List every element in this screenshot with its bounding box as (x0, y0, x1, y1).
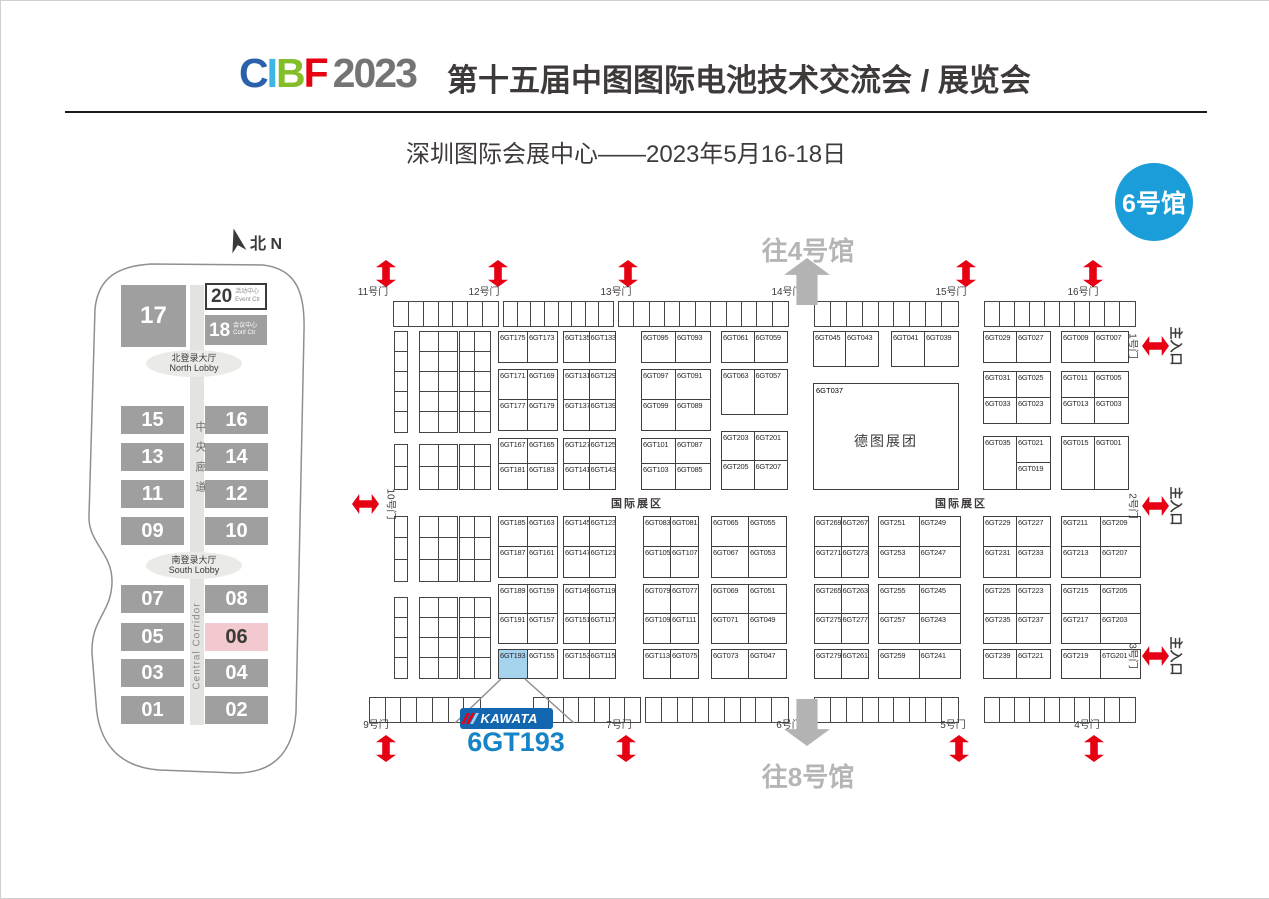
gate-label-10号门: 10号门 (385, 488, 400, 519)
small-booth-cell (709, 698, 725, 722)
booth-6GT249: 6GT249 (920, 517, 961, 547)
booth-6GT233: 6GT233 (1017, 547, 1050, 577)
small-booth-cell (742, 302, 757, 326)
booth-6GT015: 6GT015 (1062, 437, 1095, 489)
red-arrow-icon (949, 735, 969, 762)
booth-label: 6GT147 (565, 548, 590, 557)
booth-6GT169: 6GT169 (528, 370, 557, 400)
booth-label: 6GT213 (1063, 548, 1088, 557)
small-booth-cell (439, 392, 458, 412)
small-booth-cell (460, 538, 475, 559)
booth-6GT209: 6GT209 (1101, 517, 1140, 547)
booth-label: 6GT081 (672, 518, 697, 527)
booth-6GT151: 6GT151 (564, 614, 590, 643)
booth-label: 6GT229 (985, 518, 1010, 527)
booth-6GT029: 6GT029 (984, 332, 1017, 362)
booth-6GT207: 6GT207 (1101, 547, 1140, 577)
booth-label: 6GT015 (1063, 438, 1088, 447)
main-entrance-label: 主入口 (1168, 636, 1187, 675)
small-booth-cell (985, 698, 1000, 722)
booth-label: 6GT223 (1018, 586, 1043, 595)
booth-6GT117: 6GT117 (590, 614, 616, 643)
small-booth-cell (1090, 302, 1105, 326)
booth-6GT189: 6GT189 (499, 585, 528, 614)
booth-6GT031: 6GT031 (984, 372, 1017, 398)
small-booth-strip (459, 597, 491, 679)
booth-label: 6GT219 (1063, 651, 1088, 660)
booth-6GT119: 6GT119 (590, 585, 616, 614)
booth-block: 6GT1356GT133 (563, 331, 616, 363)
booth-label: 6GT117 (591, 615, 616, 624)
booth-label: 6GT111 (672, 615, 696, 624)
booth-6GT161: 6GT161 (528, 547, 557, 577)
booth-label: 6TG201 (1102, 651, 1127, 660)
small-booth-cell (831, 698, 847, 722)
small-booth-cell (475, 538, 490, 559)
small-booth-cell (665, 302, 680, 326)
small-booth-cell (420, 412, 439, 432)
booth-label: 6GT101 (643, 440, 668, 449)
booth-block: 6GT1136GT075 (643, 649, 699, 679)
small-booth-cell (1030, 698, 1045, 722)
small-booth-cell (439, 352, 458, 372)
booth-label: 6GT119 (591, 586, 616, 595)
booth-label: 6GT129 (591, 371, 616, 380)
booth-block: 6GT0976GT0916GT0996GT089 (641, 369, 711, 431)
booth-6GT263: 6GT263 (842, 585, 869, 614)
booth-label: 6GT021 (1018, 438, 1043, 447)
booth-label: 6GT065 (713, 518, 738, 527)
small-booth-cell (460, 638, 475, 658)
small-booth-cell (420, 352, 439, 372)
booth-block: 6GT0356GT0216GT019 (983, 436, 1051, 490)
booth-6GT057: 6GT057 (755, 370, 788, 414)
booth-label: 6GT153 (565, 651, 590, 660)
small-booth-cell (395, 598, 407, 618)
booth-6GT115: 6GT115 (590, 650, 616, 678)
booth-block: 6GT1936GT155 (498, 649, 558, 679)
booth-label: 6GT123 (591, 518, 616, 527)
booth-6GT217: 6GT217 (1062, 614, 1101, 643)
booth-6GT215: 6GT215 (1062, 585, 1101, 614)
booth-6GT271: 6GT271 (815, 547, 842, 577)
booth-label: 6GT279 (816, 651, 841, 660)
small-booth-cell (579, 698, 594, 722)
small-booth-cell (650, 302, 665, 326)
booth-label: 6GT037 (816, 386, 843, 395)
booth-label: 6GT063 (723, 371, 748, 380)
red-arrow-icon (376, 735, 396, 762)
small-booth-cell (395, 467, 407, 489)
international-zone-label: 国际展区 (611, 495, 663, 511)
booth-label: 6GT041 (893, 333, 918, 342)
booth-6GT053: 6GT053 (749, 547, 786, 577)
booth-6GT213: 6GT213 (1062, 547, 1101, 577)
booth-6GT069: 6GT069 (712, 585, 749, 614)
booth-block: 6GT1276GT1256GT1416GT143 (563, 438, 616, 490)
small-booth-cell (727, 302, 742, 326)
small-booth-cell (678, 698, 694, 722)
booth-label: 6GT075 (672, 651, 697, 660)
small-booth-cell (420, 392, 439, 412)
booth-label: 6GT207 (756, 462, 781, 471)
booth-6GT111: 6GT111 (671, 614, 698, 643)
booth-6GT079: 6GT079 (644, 585, 671, 614)
booth-6GT237: 6GT237 (1017, 614, 1050, 643)
small-booth-strip (394, 597, 408, 679)
small-booth-cell (460, 445, 475, 467)
booth-6GT103: 6GT103 (642, 464, 676, 489)
booth-block: 6GT1316GT1296GT1376GT139 (563, 369, 616, 431)
booth-6GT261: 6GT261 (842, 650, 869, 678)
booth-label: 6GT139 (591, 401, 616, 410)
small-booth-cell (475, 598, 490, 618)
booth-label: 6GT067 (713, 548, 738, 557)
small-booth-cell (395, 412, 407, 432)
booth-6GT003: 6GT003 (1095, 398, 1128, 424)
small-booth-cell (395, 372, 407, 392)
booth-6GT245: 6GT245 (920, 585, 961, 614)
booth-6GT205: 6GT205 (1101, 585, 1140, 614)
booth-label: 6GT179 (529, 401, 554, 410)
small-booth-cell (504, 302, 518, 326)
small-booth-strip (419, 516, 458, 582)
booth-block: 6GT2516GT2496GT2536GT247 (878, 516, 961, 578)
small-booth-cell (460, 560, 475, 581)
small-booth-cell (409, 302, 424, 326)
booth-block: 6GT0456GT043 (813, 331, 879, 367)
small-booth-cell (420, 538, 439, 559)
booth-6GT027: 6GT027 (1017, 332, 1050, 362)
booth-label: 6GT087 (677, 440, 702, 449)
booth-6GT257: 6GT257 (879, 614, 920, 643)
booth-label: 6GT243 (921, 615, 946, 624)
booth-6GT141: 6GT141 (564, 464, 590, 489)
red-arrow-icon (616, 735, 636, 762)
booth-label: 6GT257 (880, 615, 905, 624)
small-booth-cell (1000, 698, 1015, 722)
small-booth-cell (1030, 302, 1045, 326)
booth-block: 6GT0836GT0816GT1056GT107 (643, 516, 699, 578)
booth-label: 6GT143 (591, 465, 616, 474)
booth-6GT251: 6GT251 (879, 517, 920, 547)
booth-label: 6GT273 (843, 548, 868, 557)
booth-block: 6GT1896GT1596GT1916GT157 (498, 584, 558, 644)
booth-label: 6GT055 (750, 518, 775, 527)
small-booth-cell (439, 538, 458, 559)
small-booth-cell (1045, 302, 1060, 326)
kawata-logo-text: KAWATA (481, 711, 538, 726)
small-booth-cell (424, 302, 439, 326)
booth-6GT055: 6GT055 (749, 517, 786, 547)
booth-label: 6GT245 (921, 586, 946, 595)
booth-label: 6GT171 (500, 371, 525, 380)
small-booth-cell (475, 517, 490, 538)
booth-label: 6GT187 (500, 548, 525, 557)
booth-label: 6GT269 (816, 518, 841, 527)
booth-label: 6GT241 (921, 651, 946, 660)
booth-6GT043: 6GT043 (846, 332, 878, 366)
booth-6GT095: 6GT095 (642, 332, 676, 362)
booth-6GT013: 6GT013 (1062, 398, 1095, 424)
small-booth-cell (564, 698, 579, 722)
booth-label: 6GT125 (591, 440, 616, 449)
small-booth-cell (599, 302, 613, 326)
booth-6GT125: 6GT125 (590, 439, 616, 464)
booth-label: 6GT031 (985, 373, 1010, 382)
booth-label: 6GT151 (565, 615, 590, 624)
small-booth-cell (460, 392, 475, 412)
booth-block: 6GT2696GT2676GT2716GT273 (814, 516, 869, 578)
booth-6GT099: 6GT099 (642, 400, 676, 430)
booth-label: 6GT259 (880, 651, 905, 660)
booth-6GT265: 6GT265 (815, 585, 842, 614)
booth-6GT005: 6GT005 (1095, 372, 1128, 398)
booth-6GT039: 6GT039 (925, 332, 958, 366)
booth-block: 6GT1716GT1696GT1776GT179 (498, 369, 558, 431)
small-booth-cell (1105, 302, 1120, 326)
booth-block: 6GT0656GT0556GT0676GT053 (711, 516, 787, 578)
small-booth-cell (453, 302, 468, 326)
booth-block: 6GT2396GT221 (983, 649, 1051, 679)
small-booth-cell (475, 618, 490, 638)
booth-6GT171: 6GT171 (499, 370, 528, 400)
booth-6GT127: 6GT127 (564, 439, 590, 464)
gate-label-13号门: 13号门 (593, 283, 639, 298)
small-booth-cell (559, 302, 573, 326)
booth-6GT035: 6GT035 (984, 437, 1017, 463)
small-booth-strip (814, 301, 959, 327)
booth-label: 6GT207 (1102, 548, 1127, 557)
gate-label-5号门: 5号门 (930, 716, 976, 731)
small-booth-cell (439, 332, 458, 352)
booth-6GT239: 6GT239 (984, 650, 1017, 678)
small-booth-cell (401, 698, 417, 722)
small-booth-cell (395, 517, 407, 538)
booth-6GT227: 6GT227 (1017, 517, 1050, 547)
booth-label: 6GT083 (645, 518, 670, 527)
booth-6GT187: 6GT187 (499, 547, 528, 577)
small-booth-cell (460, 658, 475, 678)
small-booth-cell (483, 302, 498, 326)
small-booth-strip (459, 331, 491, 433)
booth-6GT155: 6GT155 (528, 650, 557, 678)
small-booth-strip (984, 697, 1136, 723)
small-booth-cell (1075, 302, 1090, 326)
booth-label: 6GT011 (1063, 373, 1088, 382)
booth-6GT149: 6GT149 (564, 585, 590, 614)
booth-label: 6GT159 (529, 586, 554, 595)
small-booth-cell (1000, 302, 1015, 326)
booth-6GT089: 6GT089 (676, 400, 710, 430)
page: CIBF2023 第十五届中图图际电池技术交流会 / 展览会 深圳图际会展中心—… (0, 0, 1269, 899)
small-booth-cell (863, 698, 879, 722)
red-arrow-icon (352, 494, 379, 514)
small-booth-cell (693, 698, 709, 722)
booth-label: 6GT059 (756, 333, 781, 342)
small-booth-cell (395, 618, 407, 638)
booth-label: 6GT205 (1102, 586, 1127, 595)
booth-6GT269: 6GT269 (815, 517, 842, 547)
booth-block: 6GT0316GT0256GT0336GT023 (983, 371, 1051, 424)
small-booth-cell (395, 392, 407, 412)
small-booth-cell (460, 618, 475, 638)
booth-label: 6GT263 (843, 586, 868, 595)
booth-6GT173: 6GT173 (528, 332, 557, 362)
small-booth-cell (439, 302, 454, 326)
booth-label: 6GT231 (985, 548, 1010, 557)
booth-6GT179: 6GT179 (528, 400, 557, 430)
small-booth-cell (420, 658, 439, 678)
booth-6GT041: 6GT041 (892, 332, 925, 366)
booth-6GT203: 6GT203 (722, 432, 755, 461)
booth-6GT163: 6GT163 (528, 517, 557, 547)
booth-label: 6GT057 (756, 371, 781, 380)
booth-6GT139: 6GT139 (590, 400, 616, 430)
booth-6GT051: 6GT051 (749, 585, 786, 614)
booth-6GT033: 6GT033 (984, 398, 1017, 424)
small-booth-cell (433, 698, 449, 722)
booth-label: 6GT047 (750, 651, 775, 660)
booth-block: 6GT2156GT2056GT2176GT203 (1061, 584, 1141, 644)
booth-label: 6GT009 (1063, 333, 1088, 342)
small-booth-cell (460, 372, 475, 392)
booth-6GT071: 6GT071 (712, 614, 749, 643)
small-booth-cell (420, 618, 439, 638)
booth-6GT019: 6GT019 (1017, 463, 1050, 489)
booth-block: 6GT2796GT261 (814, 649, 869, 679)
booth-label: 6GT013 (1063, 399, 1088, 408)
small-booth-cell (680, 302, 695, 326)
small-booth-cell (475, 467, 490, 489)
booth-label: 6GT277 (843, 615, 868, 624)
booth-block: 6GT0736GT047 (711, 649, 787, 679)
booth-label: 6GT177 (500, 401, 525, 410)
booth-6GT201: 6GT201 (755, 432, 788, 461)
booth-label: 6GT095 (643, 333, 668, 342)
booth-label: 6GT071 (713, 615, 738, 624)
small-booth-cell (475, 332, 490, 352)
small-booth-cell (439, 638, 458, 658)
booth-6GT275: 6GT275 (815, 614, 842, 643)
booth-label: 6GT267 (843, 518, 868, 527)
booth-6GT061: 6GT061 (722, 332, 755, 362)
gate-label-15号门: 15号门 (928, 283, 974, 298)
booth-6GT105: 6GT105 (644, 547, 671, 577)
booth-label: 6GT209 (1102, 518, 1127, 527)
booth-label: 6GT217 (1063, 615, 1088, 624)
small-booth-cell (417, 698, 433, 722)
booth-label: 6GT173 (529, 333, 554, 342)
small-booth-cell (1060, 302, 1075, 326)
booth-callout-6GT193: 6GT193 (456, 727, 576, 758)
small-booth-strip (618, 301, 789, 327)
booth-6GT181: 6GT181 (499, 464, 528, 489)
booth-block: 6GT0296GT027 (983, 331, 1051, 363)
booth-6GT085: 6GT085 (676, 464, 710, 489)
international-zone-label: 国际展区 (935, 495, 987, 511)
booth-6GT067: 6GT067 (712, 547, 749, 577)
small-booth-strip (419, 331, 458, 433)
booth-6GT167: 6GT167 (499, 439, 528, 464)
booth-6GT083: 6GT083 (644, 517, 671, 547)
booth-block: 6GT0416GT039 (891, 331, 959, 367)
small-booth-cell (725, 698, 741, 722)
booth-label: 6GT023 (1018, 399, 1043, 408)
booth-label: 6GT105 (645, 548, 670, 557)
small-booth-strip (394, 444, 408, 490)
booth-label: 6GT049 (750, 615, 775, 624)
booth-block: 6GT0156GT001 (1061, 436, 1129, 490)
small-booth-cell (879, 302, 895, 326)
small-booth-strip (394, 516, 408, 582)
booth-label: 6GT027 (1018, 333, 1043, 342)
booth-label: 6GT113 (645, 651, 670, 660)
booth-6GT253: 6GT253 (879, 547, 920, 577)
booth-6GT049: 6GT049 (749, 614, 786, 643)
small-booth-cell (475, 372, 490, 392)
booth-block: 6GT0096GT007 (1061, 331, 1129, 363)
booth-6GT123: 6GT123 (590, 517, 616, 547)
small-booth-cell (395, 658, 407, 678)
booth-6GT223: 6GT223 (1017, 585, 1050, 614)
booth-6GT147: 6GT147 (564, 547, 590, 577)
small-booth-cell (475, 658, 490, 678)
booth-label: 6GT039 (926, 333, 951, 342)
booth-label: 6GT163 (529, 518, 554, 527)
small-booth-strip (393, 301, 499, 327)
booth-label: 6GT115 (591, 651, 616, 660)
small-booth-cell (475, 392, 490, 412)
booth-label: 6GT149 (565, 586, 590, 595)
booth-6GT243: 6GT243 (920, 614, 961, 643)
booth-6GT185: 6GT185 (499, 517, 528, 547)
small-booth-cell (572, 302, 586, 326)
small-booth-strip (984, 301, 1136, 327)
booth-label: 6GT085 (677, 465, 702, 474)
booth-label: 6GT001 (1096, 438, 1121, 447)
booth-label: 6GT169 (529, 371, 554, 380)
gate-label-12号门: 12号门 (461, 283, 507, 298)
booth-6GT131: 6GT131 (564, 370, 590, 400)
booth-label: 6GT203 (1102, 615, 1127, 624)
small-booth-cell (831, 302, 847, 326)
booth-block: 6GT2656GT2636GT2756GT277 (814, 584, 869, 644)
booth-6GT129: 6GT129 (590, 370, 616, 400)
booth-6GT007: 6GT007 (1095, 332, 1128, 362)
booth-label: 6GT191 (500, 615, 525, 624)
booth-block: 6GT1456GT1236GT1476GT121 (563, 516, 616, 578)
booth-block: 6GT2256GT2236GT2356GT237 (983, 584, 1051, 644)
small-booth-cell (439, 618, 458, 638)
booth-label: 6GT007 (1096, 333, 1121, 342)
booth-label: 6GT121 (591, 548, 616, 557)
booth-6GT021: 6GT021 (1017, 437, 1050, 463)
big-booth-name: 德图展团 (814, 431, 958, 451)
booth-label: 6GT079 (645, 586, 670, 595)
small-booth-cell (1045, 698, 1060, 722)
small-booth-cell (460, 352, 475, 372)
small-booth-cell (926, 302, 942, 326)
gate-label-4号门: 4号门 (1064, 716, 1110, 731)
booth-label: 6GT131 (565, 371, 590, 380)
small-booth-cell (395, 332, 407, 352)
booth-block: 6GT1536GT115 (563, 649, 616, 679)
booth-label: 6GT135 (565, 333, 590, 342)
booth-6GT165: 6GT165 (528, 439, 557, 464)
small-booth-cell (439, 372, 458, 392)
booth-label: 6GT275 (816, 615, 841, 624)
